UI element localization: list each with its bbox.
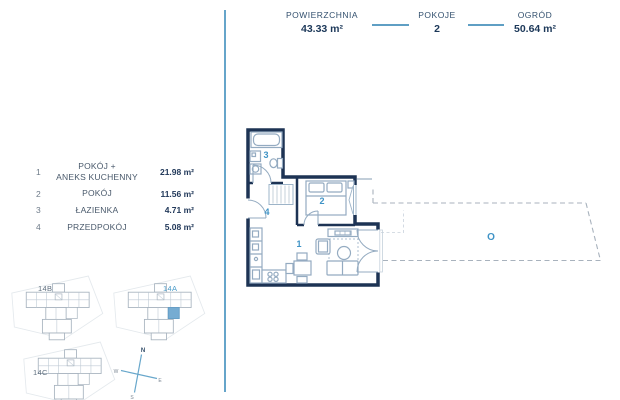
sofa [327, 261, 358, 275]
minimap-building-14a[interactable]: 14A [114, 276, 205, 340]
coffee-table [338, 247, 351, 260]
compass-west-label: W [114, 369, 119, 375]
floor-plan-canvas: O [0, 0, 620, 400]
minimap-building-14b[interactable]: 14B [12, 276, 103, 340]
washing-machine [250, 151, 261, 162]
plan-room1-label: 1 [296, 239, 301, 249]
minimap-building-14b-label: 14B [38, 284, 52, 293]
stove [262, 270, 286, 283]
tv-sideboard [328, 229, 358, 237]
toilet [270, 159, 283, 169]
compass: N W E S [114, 348, 163, 400]
compass-east-label: E [158, 378, 162, 384]
compass-south-label: S [130, 395, 134, 400]
plan-room2-label: 2 [319, 196, 324, 206]
garden-boundary [373, 188, 601, 261]
plan-room3-label: 3 [263, 150, 268, 160]
bathtub [251, 132, 282, 148]
garden-label: O [487, 232, 495, 243]
wardrobe [269, 185, 293, 205]
minimap-building-14c[interactable]: 14C [24, 342, 115, 400]
plan-room4-label: 4 [264, 207, 269, 217]
kitchen-counter [250, 228, 262, 283]
minimap-building-14c-label: 14C [33, 368, 48, 377]
minimap-building-14a-label: 14A [163, 284, 177, 293]
compass-north-label: N [141, 348, 145, 354]
selected-unit-highlight[interactable] [168, 308, 179, 319]
floorplan-page: POWIERZCHNIA 43.33 m² POKOJE 2 OGRÓD 50.… [0, 0, 620, 400]
armchair [316, 239, 330, 254]
